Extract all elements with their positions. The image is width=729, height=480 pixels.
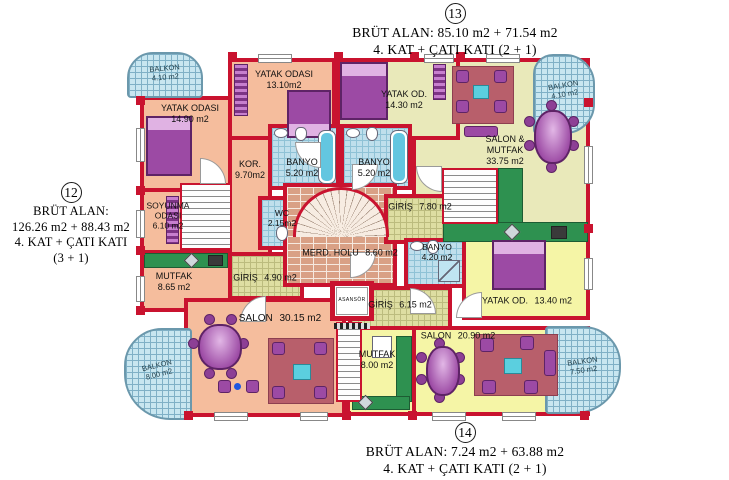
label-yatak-od-1340: YATAK OD. 13.40 m2	[480, 296, 574, 307]
coffee-table	[293, 364, 311, 380]
stove-icon	[551, 226, 567, 239]
label-yatak-od-1430: YATAK OD. 14.30 m2	[381, 89, 427, 111]
bed	[492, 240, 546, 290]
room-name: SALON	[421, 331, 452, 341]
label-salon-3015: SALON 30.15 m2	[237, 313, 323, 325]
corner-shower	[438, 260, 460, 282]
unit-13-kat: 4. KAT + ÇATI KATI (2 + 1)	[305, 42, 605, 59]
unit-14-kat: 4. KAT + ÇATI KATI (2 + 1)	[315, 461, 615, 478]
unit-13-brut-alan: BRÜT ALAN: 85.10 m2 + 71.54 m2	[305, 25, 605, 42]
dining-table	[198, 324, 242, 370]
floor-plan: 13 BRÜT ALAN: 85.10 m2 + 71.54 m2 4. KAT…	[0, 0, 729, 480]
door-swing	[456, 292, 482, 318]
armchair	[456, 100, 469, 113]
unit-14-number: 14	[455, 422, 476, 443]
room-area: 5.20 m2	[286, 168, 319, 179]
room-area: 33.75 m2	[477, 155, 533, 166]
window	[258, 54, 292, 63]
label-mutfak-865: MUTFAK 8.65 m2	[156, 271, 193, 293]
room-name: SALON & MUTFAK	[477, 134, 533, 156]
balcony-bottom-right-label: BALKON 7.50 m2	[567, 354, 600, 377]
chair	[416, 352, 427, 363]
unit-14-brut-alan: BRÜT ALAN: 7.24 m2 + 63.88 m2	[315, 444, 615, 461]
room-name: GİRİŞ	[368, 300, 393, 310]
balcony-bottom-left-label: BALKON 8.00 m2	[141, 357, 175, 383]
room-area: 4.90 m2	[264, 273, 297, 283]
room-name: YATAK OD.	[381, 89, 427, 100]
dining-table	[426, 346, 460, 396]
chair	[226, 368, 237, 379]
room-area: 9.70m2	[235, 170, 265, 181]
label-salon-mutfak: SALON & MUTFAK 33.75 m2	[477, 134, 533, 166]
kitchen-counter	[396, 336, 412, 402]
label-soyunma-odasi: SOYUNMA ODASI 6.10 m2	[141, 201, 195, 232]
balcony-bottom-left: BALKON 8.00 m2	[124, 328, 192, 420]
label-giris-615: GİRİŞ 6.15 m2	[366, 300, 434, 311]
armchair	[218, 380, 231, 393]
wall-pilaster	[584, 224, 593, 233]
room-name: MUTFAK	[156, 271, 193, 282]
room-name: GİRİŞ	[388, 202, 413, 212]
room-name: SALON	[239, 313, 273, 324]
label-salon-2090: SALON 20.90 m2	[419, 331, 498, 342]
wall-pilaster	[136, 306, 145, 315]
room-area: 14.90 m2	[161, 114, 219, 125]
label-giris-490: GİRİŞ 4.90 m2	[231, 273, 299, 284]
unit-14-title: 14 BRÜT ALAN: 7.24 m2 + 63.88 m2 4. KAT …	[315, 422, 615, 478]
armchair	[314, 386, 327, 399]
coffee-table	[504, 358, 522, 374]
elevator-hatch	[334, 323, 370, 329]
window	[214, 412, 248, 421]
room-area: 8.65 m2	[156, 282, 193, 293]
room-area: 30.15 m2	[279, 313, 321, 324]
room-area: 14.30 m2	[381, 100, 427, 111]
armchair	[314, 342, 327, 355]
label-banyo-sol: BANYO 5.20 m2	[286, 157, 319, 179]
room-area: 7.80 m2	[419, 202, 452, 212]
unit-12-title: 12 BRÜT ALAN: 126.26 m2 + 88.43 m2 4. KA…	[0, 182, 142, 267]
room-name: YATAK ODASI	[255, 69, 313, 80]
armchair	[482, 380, 496, 394]
sofa	[544, 350, 556, 376]
label-wc: WC 2.15m2	[268, 208, 296, 228]
armchair	[494, 100, 507, 113]
room-name: YATAK OD.	[482, 296, 528, 306]
coffee-table	[473, 85, 489, 99]
balcony-top-left: BALKON 4.10 m2	[127, 52, 203, 98]
label-mutfak-800: MUTFAK 8.00 m2	[359, 349, 396, 371]
room-name: KOR.	[235, 159, 265, 170]
room-area: 6.15 m2	[399, 300, 432, 310]
armchair	[494, 70, 507, 83]
room-area: 6.10 m2	[141, 221, 195, 231]
armchair	[272, 386, 285, 399]
stair-apartment-13	[442, 168, 498, 224]
room-area: 2.15m2	[268, 218, 296, 228]
label-merd-holu: MERD. HOLU 8.60 m2	[300, 248, 400, 259]
kitchen-counter	[498, 168, 523, 226]
side-table	[234, 383, 241, 390]
room-name: YATAK ODASI	[161, 103, 219, 114]
room-name: ASANSÖR	[338, 297, 365, 303]
chair	[226, 314, 237, 325]
window	[584, 146, 593, 184]
label-yatak-odasi-1310: YATAK ODASI 13.10m2	[255, 69, 313, 91]
sink-icon	[274, 128, 288, 138]
room-name: WC	[268, 208, 296, 218]
unit-12-area: 126.26 m2 + 88.43 m2	[0, 220, 142, 236]
chair	[524, 116, 535, 127]
stove-icon	[208, 255, 223, 266]
dining-table	[534, 110, 572, 164]
toilet-icon	[276, 226, 288, 241]
window	[136, 276, 145, 302]
sink-icon	[346, 128, 360, 138]
room-name: SOYUNMA ODASI	[141, 201, 195, 221]
room-area: 4.10 m2	[150, 72, 181, 84]
armchair	[246, 380, 259, 393]
unit-12-tip: (3 + 1)	[0, 251, 142, 267]
wall-pilaster	[580, 411, 589, 420]
armchair	[524, 380, 538, 394]
wall-pilaster	[136, 96, 145, 105]
label-banyo-sag: BANYO 5.20 m2	[358, 157, 391, 179]
room-name: GİRİŞ	[233, 273, 258, 283]
room-name: MUTFAK	[359, 349, 396, 360]
label-yatak-odasi-1490: YATAK ODASI 14.90 m2	[161, 103, 219, 125]
room-name: MERD. HOLU	[302, 248, 359, 258]
room-area: 5.20 m2	[358, 168, 391, 179]
room-area: 8.00 m2	[359, 360, 396, 371]
toilet-icon	[366, 127, 378, 141]
bathtub	[390, 130, 408, 184]
label-asansor: ASANSÖR	[338, 297, 365, 303]
window	[300, 412, 328, 421]
unit-13-title: 13 BRÜT ALAN: 85.10 m2 + 71.54 m2 4. KAT…	[305, 3, 605, 59]
room-name: BANYO	[422, 242, 453, 252]
wardrobe	[234, 64, 248, 116]
unit-12-number: 12	[61, 182, 82, 203]
toilet-icon	[295, 127, 307, 141]
wall-pilaster	[342, 411, 351, 420]
room-area: 8.60 m2	[365, 248, 398, 258]
room-area: 20.90 m2	[458, 331, 496, 341]
room-area: 13.10m2	[255, 80, 313, 91]
armchair	[520, 336, 534, 350]
room-area: 4.20 m2	[422, 252, 453, 262]
wall-pilaster	[584, 98, 593, 107]
bed	[146, 116, 192, 176]
window	[432, 412, 466, 421]
label-banyo-420: BANYO 4.20 m2	[422, 242, 453, 262]
room-name: BANYO	[358, 157, 391, 168]
label-giris-780: GİRİŞ 7.80 m2	[386, 202, 454, 213]
armchair	[456, 70, 469, 83]
unit-12-brut-alan: BRÜT ALAN:	[0, 204, 142, 220]
armchair	[272, 342, 285, 355]
wall-pilaster	[408, 411, 417, 420]
room-name: BANYO	[286, 157, 319, 168]
balcony-top-right-label: BALKON 4.10 m2	[547, 78, 580, 102]
unit-12-kat: 4. KAT + ÇATI KATI	[0, 235, 142, 251]
label-kor: KOR. 9.70m2	[235, 159, 265, 181]
room-area: 13.40 m2	[535, 296, 573, 306]
window	[136, 128, 145, 162]
balcony-top-left-label: BALKON 4.10 m2	[149, 62, 181, 83]
wall-pilaster	[184, 411, 193, 420]
wardrobe	[433, 64, 446, 100]
unit-13-number: 13	[445, 3, 466, 24]
window	[584, 258, 593, 290]
wall-pilaster	[228, 52, 237, 61]
window	[502, 412, 536, 421]
